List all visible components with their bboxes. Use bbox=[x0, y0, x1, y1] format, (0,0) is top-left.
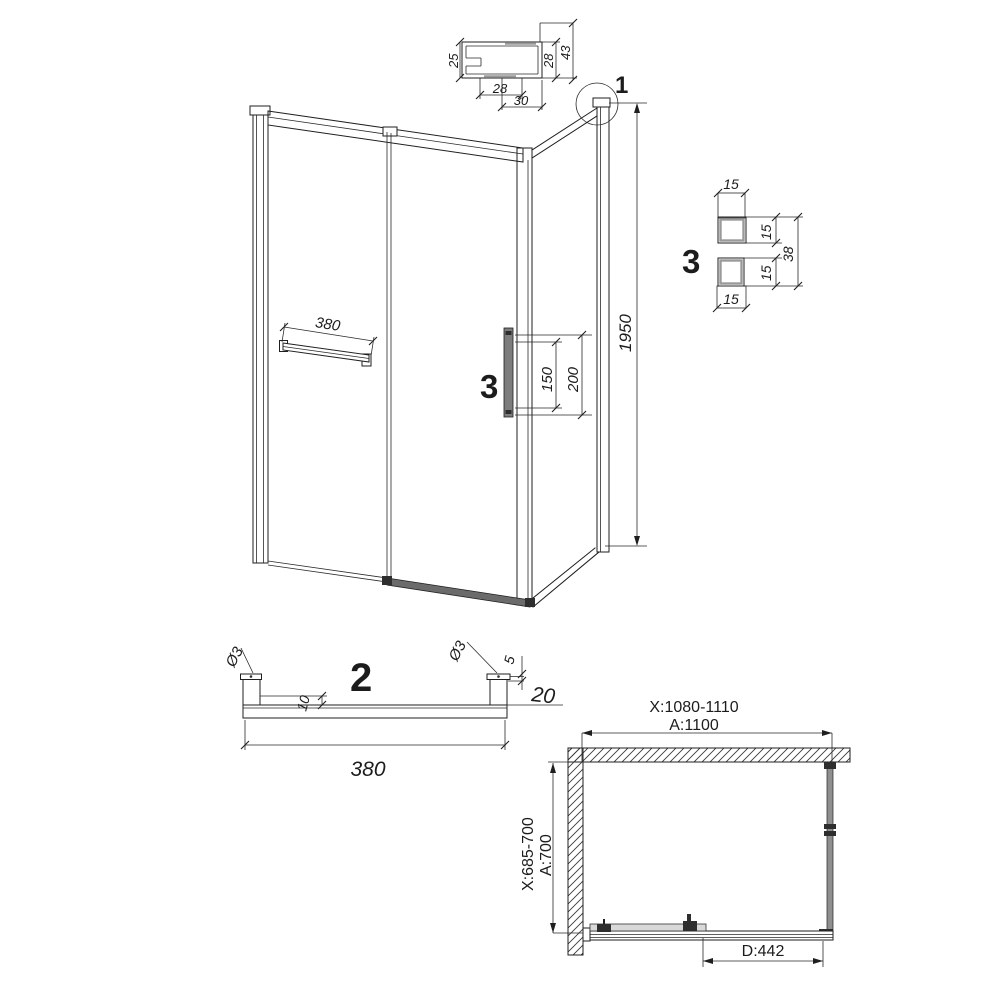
plan-view: X:1080-1110 A:1100 X:685-700 A:700 D:442 bbox=[520, 699, 850, 967]
bottom-track bbox=[387, 578, 530, 607]
right-post bbox=[517, 148, 532, 605]
side-glass-panel bbox=[827, 763, 833, 940]
dim-profile-30: 30 bbox=[514, 93, 529, 108]
dim-plan-width-nominal: A:1100 bbox=[669, 717, 719, 734]
dim-profile-28-bottom: 28 bbox=[492, 81, 508, 96]
wall-bracket-mid bbox=[824, 824, 836, 829]
top-wall bbox=[568, 748, 850, 762]
dim-handle-150: 150 bbox=[539, 366, 556, 392]
side-panel-bottom bbox=[528, 548, 599, 607]
bottom-track-plan bbox=[583, 931, 833, 940]
detail-3-handle-section: 15 15 15 15 38 3 bbox=[682, 176, 803, 312]
dim-height-1950: 1950 bbox=[616, 314, 635, 352]
dim-bar-pin-height-5: 5 bbox=[500, 654, 518, 666]
detail-1-wall-profile-section: 25 28 30 28 43 bbox=[446, 19, 577, 111]
detail-2-towel-bar: 2 Ø3 Ø3 5 10 20 380 bbox=[222, 638, 563, 781]
dim-bar-length-380: 380 bbox=[350, 758, 385, 781]
detail-3-label: 3 bbox=[682, 243, 700, 280]
door-handle bbox=[504, 328, 513, 417]
track-end-clip bbox=[382, 576, 392, 585]
fixed-panel-bottom bbox=[268, 561, 387, 582]
dim-handle-200: 200 bbox=[565, 366, 582, 393]
technical-drawing-page: 25 28 30 28 43 bbox=[0, 0, 1000, 1000]
dim-bar-left-pin-dia: Ø3 bbox=[222, 644, 247, 671]
detail-2-label: 2 bbox=[350, 656, 372, 700]
left-wall bbox=[568, 748, 583, 955]
left-post-cap bbox=[250, 106, 270, 115]
dim-profile-28-right: 28 bbox=[541, 53, 556, 69]
corner-clip bbox=[525, 598, 535, 607]
handle-callout-label: 3 bbox=[480, 368, 498, 405]
main-front-view: 380 3 150 200 1 1950 bbox=[250, 72, 647, 607]
rail-joint-block bbox=[383, 127, 397, 136]
dim-plan-depth-range: X:685-700 bbox=[520, 817, 537, 891]
dim-plan-width-range: X:1080-1110 bbox=[649, 699, 738, 716]
dim-handle-top-15: 15 bbox=[723, 176, 739, 192]
door-divider bbox=[387, 132, 391, 583]
dim-profile-25: 25 bbox=[446, 53, 461, 69]
dim-handle-bottom-15: 15 bbox=[723, 291, 739, 307]
dim-towel-bar-380: 380 bbox=[314, 314, 342, 335]
dim-profile-43: 43 bbox=[558, 45, 573, 60]
back-post-cap bbox=[593, 98, 610, 107]
dim-plan-depth-nominal: A:700 bbox=[538, 834, 555, 876]
dim-handle-overall-38: 38 bbox=[780, 246, 796, 262]
dim-bar-height-20: 20 bbox=[529, 683, 556, 708]
dim-handle-right-lower-15: 15 bbox=[758, 265, 774, 281]
dim-handle-right-upper-15: 15 bbox=[758, 224, 774, 240]
roller-left bbox=[597, 924, 611, 932]
wall-bracket-top bbox=[824, 762, 836, 769]
side-panel-top bbox=[532, 108, 597, 158]
shower-enclosure-drawing: 25 28 30 28 43 bbox=[0, 0, 1000, 1000]
callout-label-1: 1 bbox=[615, 72, 628, 99]
back-post bbox=[597, 107, 609, 552]
roller-right bbox=[683, 921, 697, 931]
dim-bar-right-pin-dia: Ø3 bbox=[445, 638, 470, 665]
dim-plan-door-width: D:442 bbox=[742, 943, 785, 960]
